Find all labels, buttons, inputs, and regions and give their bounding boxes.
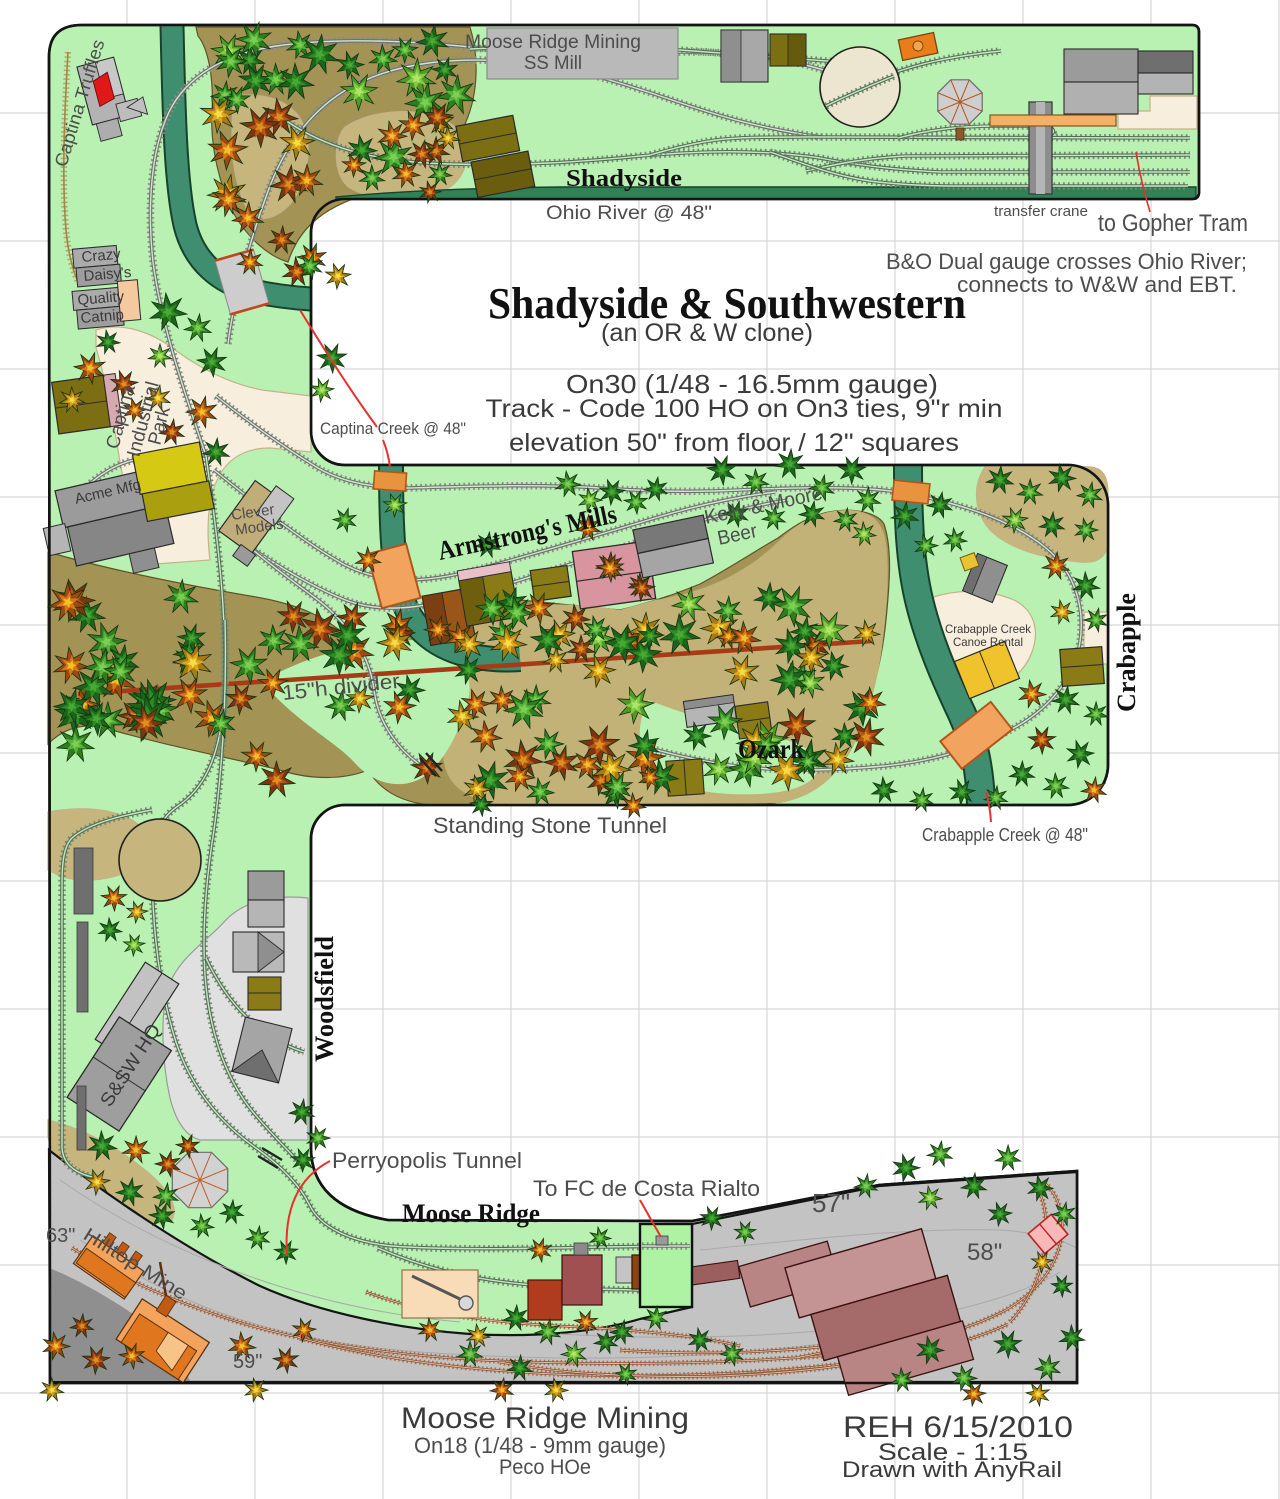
svg-text:Canoe Rental: Canoe Rental — [953, 635, 1023, 649]
svg-text:elevation 50" from floor / 12": elevation 50" from floor / 12" squares — [509, 429, 959, 457]
svg-text:Moose Ridge Mining: Moose Ridge Mining — [401, 1402, 689, 1435]
svg-text:Moose Ridge: Moose Ridge — [402, 1199, 540, 1228]
svg-text:Peco HOe: Peco HOe — [499, 1456, 591, 1479]
svg-text:Standing Stone Tunnel: Standing Stone Tunnel — [433, 813, 667, 838]
svg-text:connects to W&W and EBT.: connects to W&W and EBT. — [957, 272, 1237, 297]
svg-text:Ozark: Ozark — [738, 734, 804, 764]
svg-text:Crabapple Creek: Crabapple Creek — [945, 622, 1032, 636]
svg-text:SS Mill: SS Mill — [524, 53, 582, 74]
svg-text:Woodsfield: Woodsfield — [310, 935, 339, 1062]
svg-text:Drawn with AnyRail: Drawn with AnyRail — [842, 1457, 1062, 1482]
svg-text:Crazy: Crazy — [81, 246, 122, 266]
svg-text:B&O Dual gauge crosses Ohio Ri: B&O Dual gauge crosses Ohio River; — [886, 249, 1247, 274]
svg-text:Moose Ridge Mining: Moose Ridge Mining — [465, 32, 641, 53]
svg-text:Crabapple: Crabapple — [1112, 593, 1141, 712]
svg-text:Captina Creek @ 48": Captina Creek @ 48" — [320, 419, 466, 438]
svg-text:59": 59" — [233, 1351, 262, 1373]
svg-text:transfer crane: transfer crane — [994, 203, 1088, 220]
svg-text:to Gopher Tram: to Gopher Tram — [1098, 210, 1248, 237]
svg-text:To FC de Costa Rialto: To FC de Costa Rialto — [533, 1176, 760, 1201]
svg-text:57": 57" — [812, 1188, 850, 1218]
svg-text:Perryopolis Tunnel: Perryopolis Tunnel — [332, 1148, 522, 1173]
svg-text:On18 (1/48 - 9mm gauge): On18 (1/48 - 9mm gauge) — [414, 1433, 666, 1458]
svg-text:63": 63" — [46, 1225, 75, 1247]
svg-text:Crabapple Creek @ 48": Crabapple Creek @ 48" — [922, 825, 1088, 845]
svg-text:Track - Code 100 HO on On3 tie: Track - Code 100 HO on On3 ties, 9"r min — [486, 395, 1003, 423]
svg-text:Ohio River @ 48": Ohio River @ 48" — [546, 203, 712, 224]
svg-text:Shadyside: Shadyside — [566, 166, 682, 192]
svg-text:58": 58" — [967, 1239, 1002, 1266]
svg-text:(an OR & W clone): (an OR & W clone) — [601, 319, 813, 347]
